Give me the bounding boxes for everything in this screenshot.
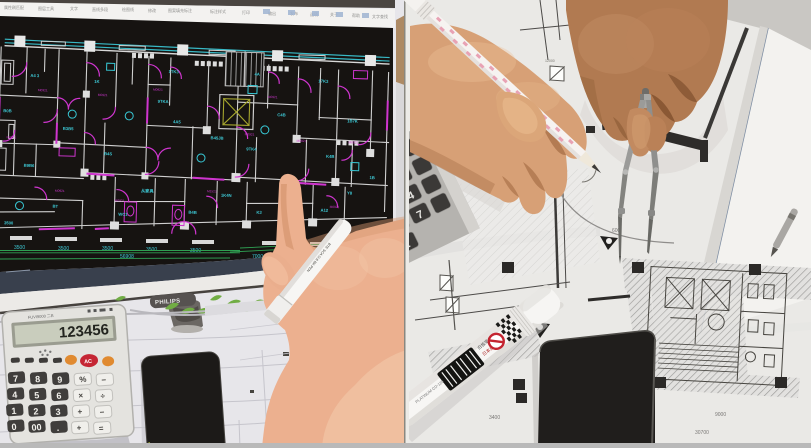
svg-text:M0821: M0821 <box>6 135 16 139</box>
svg-text:M0921: M0921 <box>296 139 306 143</box>
svg-text:56908: 56908 <box>120 254 134 260</box>
svg-text:BT: BT <box>52 204 58 209</box>
svg-text:3500: 3500 <box>102 246 113 252</box>
svg-text:9: 9 <box>57 375 63 385</box>
svg-text:K3: K3 <box>256 210 262 215</box>
svg-text:0: 0 <box>11 422 17 432</box>
svg-text:4A: 4A <box>254 72 260 77</box>
svg-text:M1521: M1521 <box>207 189 217 193</box>
svg-text:M0921: M0921 <box>38 88 48 92</box>
svg-text:1K: 1K <box>94 79 100 84</box>
svg-text:8: 8 <box>35 374 41 384</box>
svg-text:M0921: M0921 <box>153 88 163 92</box>
svg-text:AC: AC <box>84 359 92 366</box>
svg-text:3500: 3500 <box>58 246 69 252</box>
svg-text:6: 6 <box>56 391 62 401</box>
svg-text:B3B5: B3B5 <box>63 126 75 131</box>
svg-text:文字查找: 文字查找 <box>372 13 388 19</box>
svg-text:修改: 修改 <box>148 7 156 13</box>
svg-text:2: 2 <box>33 406 39 416</box>
svg-text:C4B: C4B <box>277 112 286 117</box>
svg-text:标注样式: 标注样式 <box>210 8 226 14</box>
svg-text:图案填充标注: 图案填充标注 <box>168 7 192 13</box>
svg-text:M0921: M0921 <box>348 140 358 144</box>
svg-text:123456: 123456 <box>58 321 109 341</box>
svg-text:属性刷匹配: 属性刷匹配 <box>4 4 24 10</box>
svg-text:M0921: M0921 <box>245 132 255 136</box>
svg-text:1TK3: 1TK3 <box>168 69 179 74</box>
svg-text:9TK4: 9TK4 <box>246 146 257 151</box>
svg-text:4: 4 <box>12 390 18 400</box>
svg-text:打印: 打印 <box>242 9 250 15</box>
svg-text:文字: 文字 <box>70 5 78 11</box>
svg-text:WC1: WC1 <box>118 212 128 217</box>
svg-text:M0921: M0921 <box>115 198 125 202</box>
svg-text:1: 1 <box>11 406 17 416</box>
svg-text:B4S: B4S <box>104 151 112 156</box>
svg-text:1B7K: 1B7K <box>347 118 358 123</box>
svg-text:B0B: B0B <box>3 108 12 113</box>
svg-text:M0921: M0921 <box>330 205 340 209</box>
svg-text:K4B: K4B <box>326 154 335 159</box>
svg-text:7: 7 <box>13 374 19 384</box>
svg-text:5: 5 <box>34 390 40 400</box>
svg-text:12000: 12000 <box>545 59 555 63</box>
svg-text:1B: 1B <box>369 175 375 180</box>
svg-text:9000: 9000 <box>715 412 726 418</box>
svg-text:17K3: 17K3 <box>318 78 329 83</box>
svg-text:3500: 3500 <box>4 220 14 225</box>
svg-text:3: 3 <box>55 407 61 417</box>
svg-text:1K4N: 1K4N <box>221 193 232 198</box>
svg-text:Y8: Y8 <box>347 190 353 195</box>
svg-text:帮助: 帮助 <box>352 12 360 18</box>
svg-text:M0921: M0921 <box>98 93 108 97</box>
svg-text:00: 00 <box>31 422 42 433</box>
svg-text:直线多段: 直线多段 <box>92 6 108 12</box>
svg-text:4A5: 4A5 <box>173 119 181 124</box>
svg-text:A4 3: A4 3 <box>30 73 40 78</box>
svg-text:%: % <box>79 375 87 384</box>
svg-text:9TKA: 9TKA <box>158 99 169 104</box>
svg-text:图层工具: 图层工具 <box>38 5 54 11</box>
svg-text:B4B: B4B <box>188 210 197 215</box>
svg-text:B45JB: B45JB <box>211 135 224 140</box>
svg-text:M0921: M0921 <box>268 95 278 99</box>
svg-text:3400: 3400 <box>489 415 500 421</box>
svg-text:3500: 3500 <box>146 247 157 253</box>
svg-text:30700: 30700 <box>695 430 709 436</box>
svg-text:M0921: M0921 <box>55 189 65 193</box>
svg-text:绘图线: 绘图线 <box>122 6 134 12</box>
svg-text:A12: A12 <box>320 208 328 213</box>
svg-text:B9B6: B9B6 <box>24 163 36 168</box>
